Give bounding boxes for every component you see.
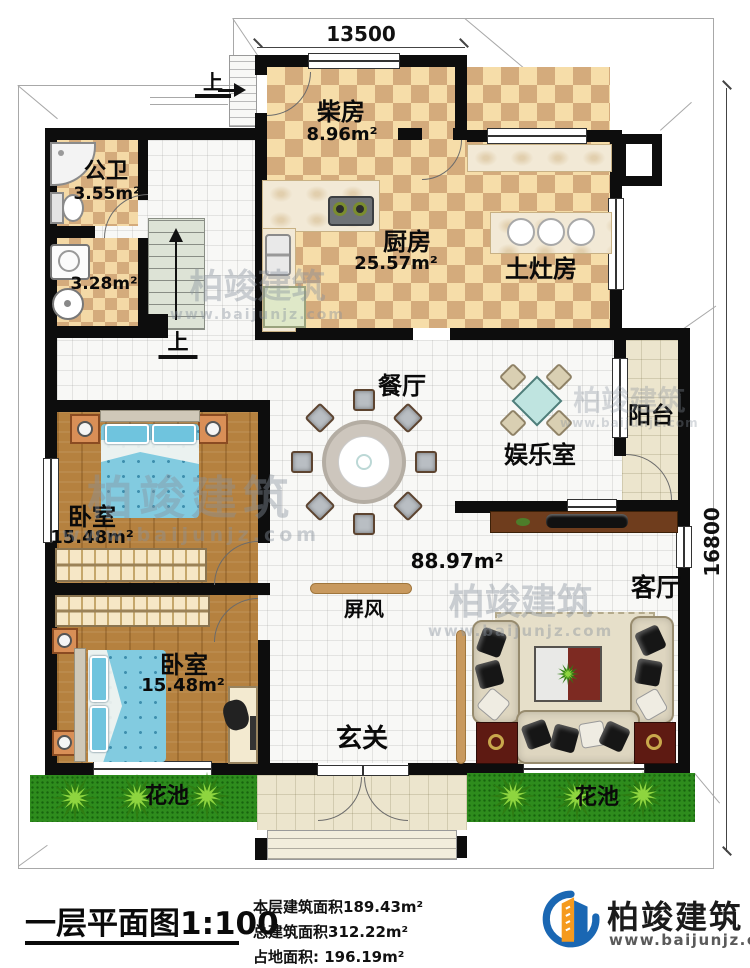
plant — [47, 770, 103, 826]
roof-line — [713, 18, 714, 868]
pillow — [152, 424, 196, 444]
landing-line — [150, 104, 228, 105]
brand-logo-icon — [540, 888, 602, 950]
dim-width-line — [257, 47, 465, 48]
title-underline — [25, 941, 239, 945]
lamp — [57, 735, 72, 750]
wall — [450, 328, 690, 340]
page-title: 一层平面图1:100 — [25, 898, 279, 943]
watermark-text: 柏竣建筑 — [560, 385, 699, 417]
stat-land-area: 占地面积: 196.19m² — [253, 946, 404, 967]
label-flowerbed-left: 花池 — [145, 786, 189, 808]
room-label-bathroom: 公卫 — [84, 161, 128, 183]
entry-arrow-head — [234, 83, 246, 97]
lamp — [57, 633, 72, 648]
screen-divider-vertical — [456, 630, 466, 764]
wall — [614, 340, 626, 360]
wall — [258, 640, 270, 775]
watermark-url: www.baijunjz.com — [560, 417, 699, 431]
lazy-susan — [356, 454, 372, 470]
label-screen: 屏风 — [344, 599, 384, 619]
shower-drain — [58, 150, 64, 156]
stove-burner — [353, 202, 367, 216]
wall — [45, 326, 138, 338]
plant — [485, 768, 541, 824]
room-area-bathroom: 3.55m² — [73, 186, 140, 203]
dim-height-label: 16800 — [700, 507, 724, 577]
room-area-kitchen: 25.57m² — [354, 255, 438, 273]
chimney — [616, 134, 662, 186]
screen-divider — [310, 583, 412, 594]
entry-arrow-line — [218, 89, 234, 92]
stat-total-area: 总建筑面积312.22m² — [253, 921, 408, 942]
dining-chair — [291, 451, 313, 473]
window — [487, 128, 587, 144]
roof-line — [18, 868, 714, 869]
watermark: 柏竣建筑 www.baijunjz.com — [560, 385, 699, 431]
roof-hip-line — [17, 85, 57, 119]
dining-chair — [353, 389, 375, 411]
desk-tv — [250, 716, 256, 750]
pillow — [90, 706, 108, 752]
room-label-stove-room: 土灶房 — [505, 257, 577, 281]
bed-headboard — [74, 648, 86, 762]
entrance-door-panel — [363, 765, 409, 776]
tv — [546, 514, 628, 528]
stove-room-counter — [467, 144, 612, 172]
side-table-ring — [488, 734, 504, 750]
wardrobe — [55, 548, 207, 582]
watermark: 柏竣建筑 www.baijunjz.com — [428, 582, 613, 641]
label-flowerbed-right: 花池 — [575, 787, 619, 809]
wall — [138, 314, 168, 338]
dining-chair — [353, 513, 375, 535]
watermark-text: 柏竣建筑 — [428, 582, 613, 623]
dim-tick — [722, 846, 732, 856]
wall — [398, 128, 422, 140]
roof-line — [233, 18, 713, 19]
pillow — [90, 656, 108, 702]
washer-door — [58, 250, 80, 272]
wall — [255, 55, 267, 75]
dim-height-line — [726, 88, 727, 852]
porch-floor — [257, 775, 467, 830]
watermark-url: www.baijunjz.com — [170, 307, 345, 323]
plant — [615, 767, 671, 823]
brand-url: www.baijunjz.com — [609, 931, 750, 949]
room-area-laundry: 3.28m² — [70, 276, 137, 293]
porch-steps — [267, 830, 457, 860]
stat-floor-area: 本层建筑面积189.43m² — [253, 896, 423, 917]
watermark-url: www.baijunjz.com — [62, 525, 320, 547]
stove-burner — [333, 202, 347, 216]
room-area-firewood: 8.96m² — [306, 126, 377, 144]
sofa-cushion — [634, 658, 663, 687]
roof-hip-line — [694, 773, 720, 804]
watermark: 柏竣建筑 www.baijunjz.com — [62, 472, 320, 547]
wardrobe — [55, 595, 210, 627]
dining-chair — [415, 451, 437, 473]
pillow — [105, 424, 149, 444]
watermark-url: www.baijunjz.com — [428, 623, 613, 640]
stairs-arrow-head — [169, 228, 183, 242]
wok-burner — [507, 218, 535, 246]
room-label-bedroom-bottom: 卧室 — [160, 653, 208, 677]
basin-drain — [64, 300, 71, 307]
lamp — [205, 421, 221, 437]
room-label-firewood: 柴房 — [317, 100, 365, 124]
bed-headboard — [100, 410, 200, 422]
window — [676, 526, 692, 568]
entrance-door-panel — [317, 765, 363, 776]
wall — [453, 128, 467, 140]
room-area-bedroom-bottom: 15.48m² — [141, 677, 225, 695]
dim-tick — [722, 80, 732, 90]
room-label-kitchen: 厨房 — [383, 230, 431, 254]
coffee-table-plant — [555, 661, 581, 687]
dim-width-label: 13500 — [326, 22, 396, 46]
side-table-ring — [646, 734, 662, 750]
room-label-living: 客厅 — [631, 575, 681, 600]
watermark-text: 柏竣建筑 — [170, 268, 345, 307]
roof-hip-line — [18, 845, 48, 867]
decor-plant — [516, 518, 530, 526]
wall — [45, 226, 95, 238]
window — [308, 53, 400, 69]
room-label-game-room: 娱乐室 — [504, 443, 576, 467]
wall — [614, 436, 626, 456]
roof-line — [18, 85, 19, 868]
room-label-dining: 餐厅 — [378, 374, 426, 398]
roof-hip-line — [660, 102, 692, 131]
watermark: 柏竣建筑 www.baijunjz.com — [170, 268, 345, 323]
lamp — [77, 421, 93, 437]
wall — [45, 128, 255, 140]
room-area-living: 88.97m² — [411, 551, 504, 571]
wok-burner — [567, 218, 595, 246]
watermark-text: 柏竣建筑 — [62, 472, 320, 525]
entry-up-label: 上 — [195, 72, 231, 98]
room-label-foyer: 玄关 — [336, 726, 388, 752]
floor-plan-canvas: 13500 16800 上 上 — [0, 0, 750, 968]
wall — [678, 340, 690, 526]
wok-burner — [537, 218, 565, 246]
